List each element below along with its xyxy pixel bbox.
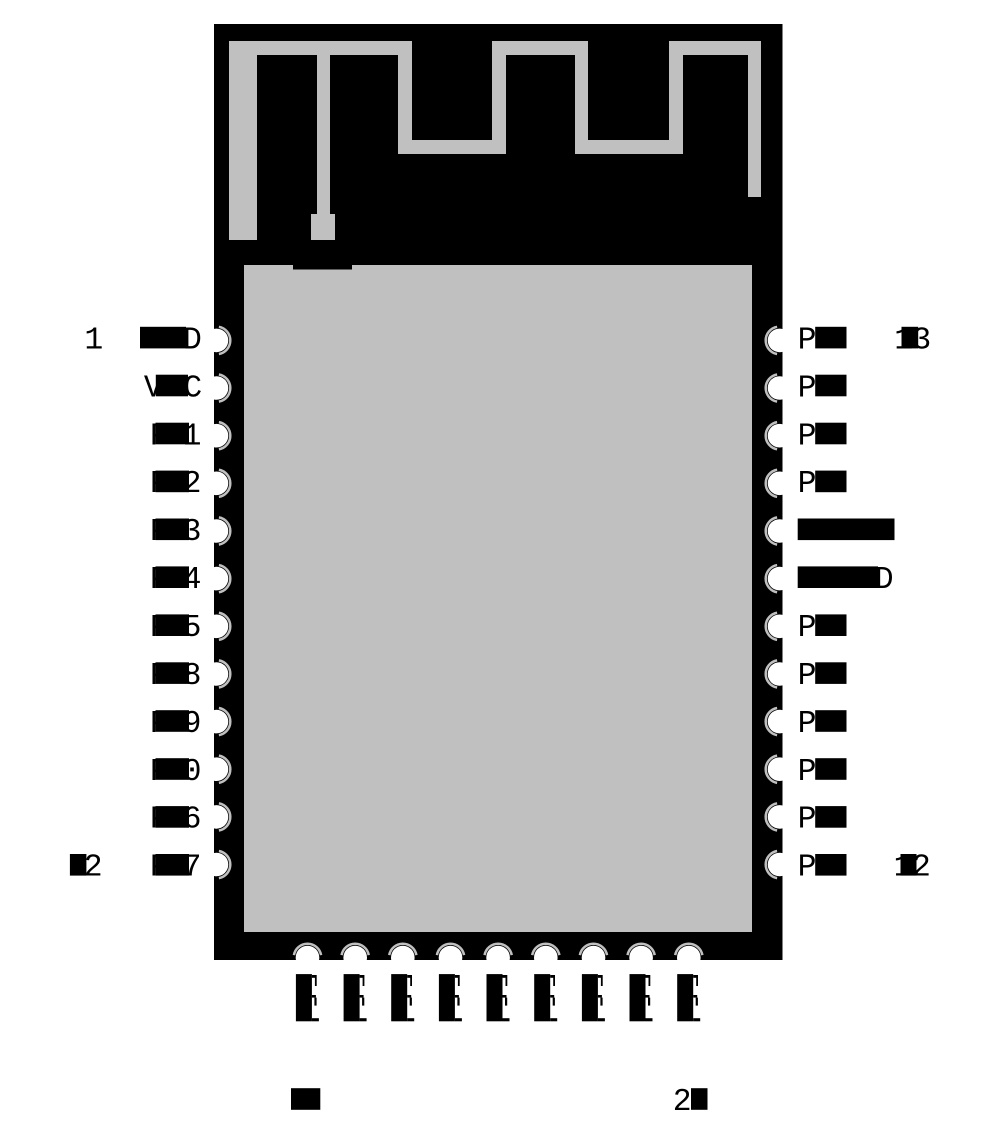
svg-text:P: P (798, 659, 817, 694)
svg-text:2: 2 (183, 467, 202, 502)
svg-text:6: 6 (183, 803, 202, 838)
svg-text:2: 2 (84, 851, 103, 886)
svg-text:P: P (798, 851, 817, 886)
svg-text:P: P (798, 611, 817, 646)
svg-text:1: 1 (183, 419, 202, 454)
svg-text:1: 1 (84, 323, 103, 358)
svg-text:D: D (875, 563, 894, 598)
svg-text:9: 9 (183, 707, 202, 742)
svg-text:P: P (798, 371, 817, 406)
svg-text:P: P (798, 803, 817, 838)
svg-text:D: D (183, 323, 202, 358)
svg-text:C: C (183, 371, 202, 406)
svg-text:P: P (798, 707, 817, 742)
svg-text:8: 8 (183, 659, 202, 694)
svg-text:P: P (798, 323, 817, 358)
svg-text:7: 7 (183, 851, 202, 886)
svg-text:P: P (798, 419, 817, 454)
svg-text:3: 3 (183, 515, 202, 550)
svg-text:4: 4 (183, 563, 202, 598)
svg-text:2: 2 (912, 851, 931, 886)
svg-text:2: 2 (673, 1085, 692, 1120)
svg-text:P: P (798, 755, 817, 790)
svg-text:0: 0 (183, 755, 202, 790)
svg-text:5: 5 (183, 611, 202, 646)
svg-text:P: P (798, 467, 817, 502)
svg-text:3: 3 (912, 323, 931, 358)
